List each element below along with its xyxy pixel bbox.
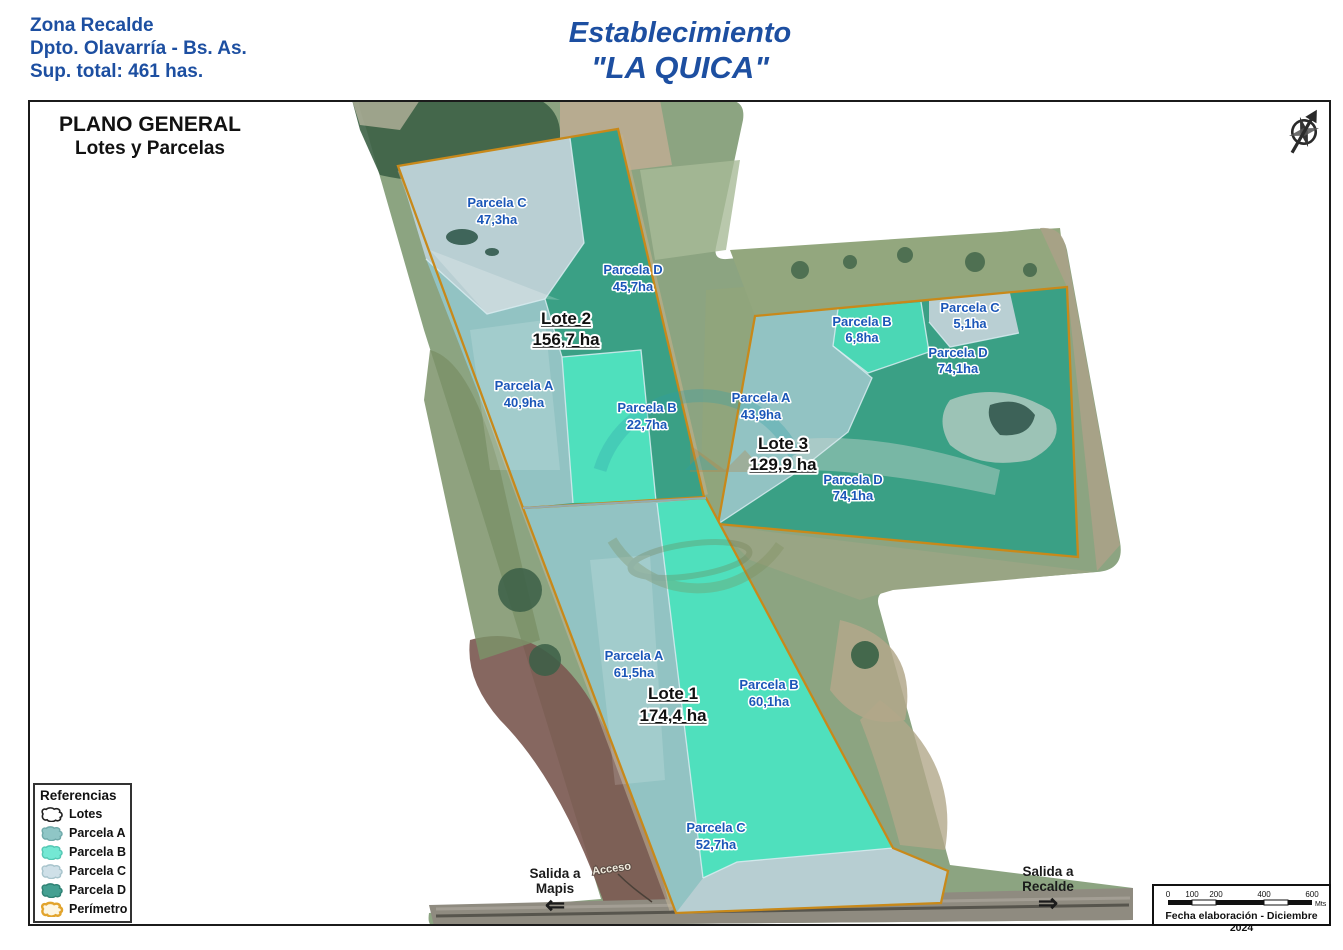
parcela-c-swatch-icon xyxy=(39,863,65,879)
parcel-label: Parcela D xyxy=(928,345,987,360)
parcel-area: 61,5ha xyxy=(614,665,655,680)
scalebar-tick: 100 xyxy=(1185,890,1199,899)
parcela-d-swatch-icon xyxy=(39,882,65,898)
lote-1-title: Lote 1 xyxy=(648,684,698,703)
exit-mapis: Salida a Mapis ⇐ xyxy=(500,866,610,916)
legend-label: Perímetro xyxy=(69,902,127,916)
legend-label: Parcela A xyxy=(69,826,126,840)
parcel-area: 74,1ha xyxy=(833,488,874,503)
scalebar: 0 100 200 400 600 Mts xyxy=(1154,886,1329,910)
parcel-label: Parcela C xyxy=(467,195,527,210)
department-label: Dpto. Olavarría - Bs. As. xyxy=(30,37,247,60)
legend-title: Referencias xyxy=(40,788,130,803)
establishment-name: "LA QUICA" xyxy=(480,50,880,86)
elaboration-date: Fecha elaboración - Diciembre 2024 xyxy=(1154,910,1329,934)
parcela-b-swatch-icon xyxy=(39,844,65,860)
page-title: Establecimiento "LA QUICA" xyxy=(480,16,880,86)
parcel-label: Parcela B xyxy=(832,314,891,329)
lote-1-area: 174,4 ha xyxy=(639,706,707,725)
right-arrow-icon: ⇒ xyxy=(993,894,1103,914)
lote-2-title: Lote 2 xyxy=(541,309,591,328)
scalebar-box: 0 100 200 400 600 Mts Fecha elaboración … xyxy=(1152,884,1331,926)
parcel-area: 22,7ha xyxy=(627,417,668,432)
establishment-title: Establecimiento xyxy=(480,16,880,50)
parcel-label: Parcela C xyxy=(686,820,746,835)
legend-item-parcela-a: Parcela A xyxy=(35,823,130,842)
parcel-area: 47,3ha xyxy=(477,212,518,227)
exit-recalde: Salida a Recalde ⇒ xyxy=(993,864,1103,914)
scalebar-tick: 400 xyxy=(1257,890,1271,899)
legend-item-lotes: Lotes xyxy=(35,804,130,823)
scalebar-tick: 600 xyxy=(1305,890,1319,899)
scalebar-tick: 0 xyxy=(1166,890,1171,899)
lote-2-area: 156,7 ha xyxy=(532,330,600,349)
parcel-area: 52,7ha xyxy=(696,837,737,852)
exit-mapis-line1: Salida a xyxy=(500,866,610,881)
scalebar-tick: 200 xyxy=(1209,890,1223,899)
parcel-label: Parcela A xyxy=(495,378,554,393)
lote-3-title: Lote 3 xyxy=(758,434,808,453)
map-title-block: PLANO GENERAL Lotes y Parcelas xyxy=(40,112,260,161)
legend-item-parcela-d: Parcela D xyxy=(35,880,130,899)
scalebar-unit: Mts xyxy=(1315,901,1327,908)
map-title-line1: PLANO GENERAL xyxy=(40,112,260,137)
legend-item-perimetro: Perímetro xyxy=(35,899,130,918)
parcel-area: 60,1ha xyxy=(749,694,790,709)
plan-map: Parcela C 47,3ha Parcela D 45,7ha Parcel… xyxy=(28,100,1331,926)
perimetro-swatch-icon xyxy=(39,901,65,917)
legend: Referencias Lotes Parcela A Parcela B Pa… xyxy=(33,783,132,923)
legend-label: Parcela B xyxy=(69,845,126,859)
parcel-area: 5,1ha xyxy=(953,316,987,331)
parcel-area: 45,7ha xyxy=(613,279,654,294)
total-area-label: Sup. total: 461 has. xyxy=(30,60,247,83)
parcel-area: 6,8ha xyxy=(845,330,879,345)
parcel-label: Parcela D xyxy=(823,472,882,487)
parcel-label: Parcela B xyxy=(739,677,798,692)
legend-item-parcela-b: Parcela B xyxy=(35,842,130,861)
parcel-area: 43,9ha xyxy=(741,407,782,422)
legend-label: Lotes xyxy=(69,807,102,821)
parcel-label: Parcela B xyxy=(617,400,676,415)
parcel-label: Parcela C xyxy=(940,300,1000,315)
parcel-label: Parcela A xyxy=(605,648,664,663)
map-frame: Parcela C 47,3ha Parcela D 45,7ha Parcel… xyxy=(28,100,1331,926)
parcela-a-swatch-icon xyxy=(39,825,65,841)
zone-label: Zona Recalde xyxy=(30,14,247,37)
legend-label: Parcela D xyxy=(69,883,126,897)
parcel-area: 74,1ha xyxy=(938,361,979,376)
parcel-label: Parcela D xyxy=(603,262,662,277)
parcel-label: Parcela A xyxy=(732,390,791,405)
left-arrow-icon: ⇐ xyxy=(500,896,610,916)
map-title-line2: Lotes y Parcelas xyxy=(40,137,260,161)
exit-recalde-line1: Salida a xyxy=(993,864,1103,879)
lote-3-area: 129,9 ha xyxy=(749,455,817,474)
parcel-area: 40,9ha xyxy=(504,395,545,410)
compass-icon xyxy=(1278,106,1330,158)
legend-label: Parcela C xyxy=(69,864,126,878)
lotes-swatch-icon xyxy=(39,806,65,822)
header-location-block: Zona Recalde Dpto. Olavarría - Bs. As. S… xyxy=(30,14,247,83)
legend-item-parcela-c: Parcela C xyxy=(35,861,130,880)
